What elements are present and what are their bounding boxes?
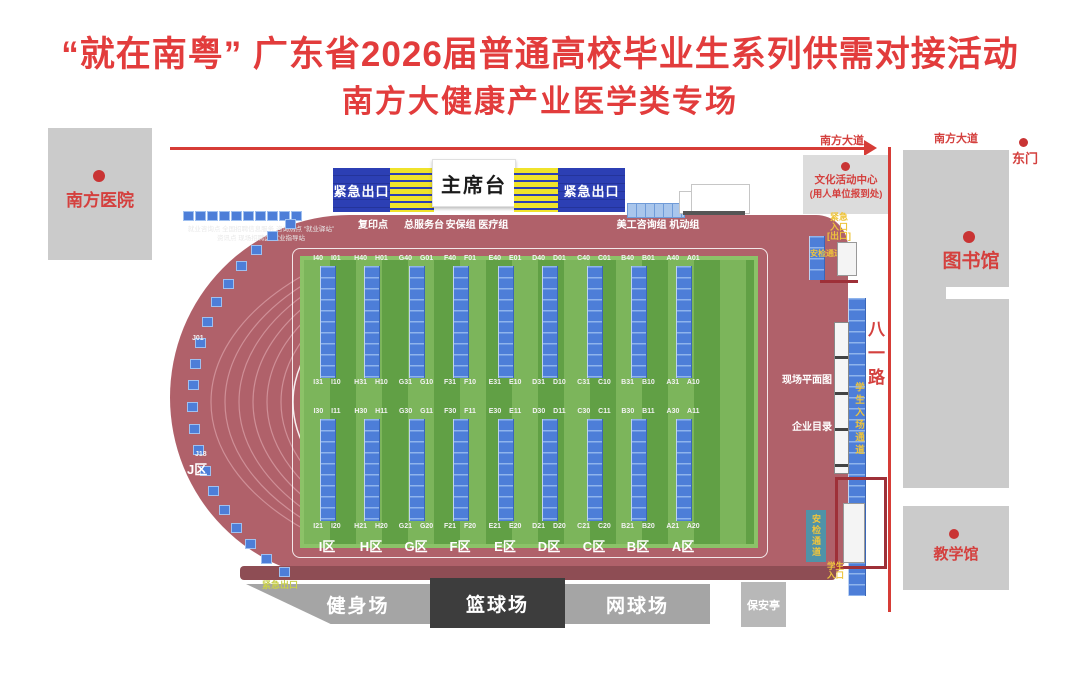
zone-booth-strip-lower [498, 419, 514, 521]
zone-name: E区 [494, 536, 516, 555]
zone-mid-lower-label: I30 I11 [313, 408, 340, 415]
east-gate-dot [1019, 138, 1028, 147]
info-booth [255, 211, 266, 221]
j-booth [279, 567, 290, 577]
info-booth [195, 211, 206, 221]
gate-box-top [837, 242, 857, 276]
info-booth-note: 就业咨询点 全国招聘信息服务 咨询热点 “就业驿站” 资讯点 现场招聘区 就业指… [176, 225, 346, 243]
j-booth [190, 359, 201, 369]
culture-center-label: 文化活动中心 [815, 172, 878, 187]
zone-bottom-label: H21 H20 [354, 523, 388, 530]
info-note-line1: 就业咨询点 全国招聘信息服务 咨询热点 “就业驿站” [176, 225, 346, 234]
zone-mid-upper-label: E31 E10 [489, 379, 522, 386]
j-booth [188, 380, 199, 390]
j-booth [187, 402, 198, 412]
zone-mid-upper-label: G31 G10 [399, 379, 433, 386]
zone-mid-upper-label: B31 B10 [621, 379, 655, 386]
j-booth [211, 297, 222, 307]
security-medical-label: 安保组 医疗组 [446, 216, 509, 231]
zone-mid-upper-label: D31 D10 [532, 379, 566, 386]
zone-mid-lower-label: A30 A11 [667, 408, 700, 415]
zone-booth-strip-upper [320, 266, 336, 378]
zone-booth-strip-lower [676, 419, 692, 521]
rostrum: 主席台 [432, 159, 516, 207]
info-booth [207, 211, 218, 221]
j-booth [231, 523, 242, 533]
zone-booth-strip-lower [631, 419, 647, 521]
library-marker-dot [963, 231, 975, 243]
zone-bottom-label: G21 G20 [399, 523, 433, 530]
student-entrance-label: 学生 入口 [827, 562, 844, 580]
top-road-label: 南方大道 [820, 132, 864, 148]
info-booth [183, 211, 194, 221]
zone-name: G区 [404, 536, 427, 555]
venue-map: “就在南粤” 广东省2026届普通高校毕业生系列供需对接活动 南方大健康产业医学… [0, 0, 1080, 675]
zone-bottom-label: B21 B20 [621, 523, 655, 530]
security-booth: 保安亭 [741, 582, 786, 627]
basketball-court: 篮球场 [430, 578, 565, 628]
info-booth [243, 211, 254, 221]
zone-bottom-label: I21 I20 [313, 523, 340, 530]
zone-mid-lower-label: G30 G11 [399, 408, 433, 415]
zone-mid-lower-label: F30 F11 [444, 408, 476, 415]
zone-name: H区 [360, 536, 382, 555]
emergency-exit-top-right: 紧急出口 [558, 168, 625, 212]
zone-name: B区 [627, 536, 649, 555]
zone-mid-lower-label: D30 D11 [532, 408, 565, 415]
east-gate-label: 东门 [1012, 148, 1038, 167]
zone-top-label: H40 H01 [354, 255, 388, 262]
zone-bottom-label: C21 C20 [577, 523, 611, 530]
zone-booth-strip-upper [498, 266, 514, 378]
zone-bottom-label: F21 F20 [444, 523, 476, 530]
zone-mid-upper-label: F31 F10 [444, 379, 476, 386]
j-zone-name: J区 [187, 459, 207, 478]
j-booth [261, 554, 272, 564]
entrance-gate-door [843, 503, 865, 563]
zone-name: D区 [538, 536, 560, 555]
grandstand-stripe-left [390, 168, 434, 212]
zone-mid-upper-label: A31 A10 [666, 379, 699, 386]
zone-booth-strip-upper [364, 266, 380, 378]
zone-booth-strip-lower [453, 419, 469, 521]
zone-booth-strip-lower [587, 419, 603, 521]
j-booth [267, 231, 278, 241]
teaching-hall-dot [949, 529, 959, 539]
zone-booth-strip-upper [409, 266, 425, 378]
j-booth [219, 505, 230, 515]
zone-mid-lower-label: C30 C11 [577, 408, 610, 415]
zone-booth-strip-lower [320, 419, 336, 521]
zone-booth-strip-lower [542, 419, 558, 521]
art-mobile-label: 美工咨询组 机动组 [617, 216, 700, 231]
zone-top-label: G40 G01 [399, 255, 433, 262]
page-title: “就在南粤” 广东省2026届普通高校毕业生系列供需对接活动 [0, 26, 1080, 77]
zone-mid-upper-label: I31 I10 [313, 379, 340, 386]
info-booth [219, 211, 230, 221]
site-map-label: 现场平面图 [782, 371, 832, 386]
j-booth [245, 539, 256, 549]
info-note-line2: 资讯点 现场招聘区 就业指导站 [176, 234, 346, 243]
tennis-court: 网球场 [565, 584, 710, 624]
j-booth [202, 317, 213, 327]
library-label: 图书馆 [942, 246, 999, 273]
emergency-exit-bottom-label: 紧急出口 [262, 578, 298, 591]
info-booth [267, 211, 278, 221]
emergency-entrance-line3: [出口] [827, 232, 851, 242]
copy-point-label: 复印点 [358, 216, 388, 231]
student-channel-label: 学生入场通道 [851, 382, 865, 457]
j-booth [223, 279, 234, 289]
teaching-hall-label: 教学馆 [933, 543, 978, 564]
zone-booth-strip-upper [453, 266, 469, 378]
hospital-label: 南方医院 [66, 186, 134, 211]
truck-body [691, 184, 750, 214]
page-subtitle: 南方大健康产业医学类专场 [0, 76, 1080, 121]
j-booth [189, 424, 200, 434]
service-desk-label: 总服务台 [404, 216, 444, 231]
zone-top-label: F40 F01 [444, 255, 476, 262]
zone-name: C区 [583, 536, 605, 555]
gate-line-top [820, 280, 858, 283]
zone-bottom-label: D21 D20 [532, 523, 566, 530]
j-last-label: J18 [195, 451, 207, 458]
zone-booth-strip-upper [542, 266, 558, 378]
j-booth [236, 261, 247, 271]
j-booth [251, 245, 262, 255]
student-entrance-line2: 入口 [827, 571, 844, 580]
j-booth [208, 486, 219, 496]
zone-top-label: C40 C01 [577, 255, 611, 262]
info-board [834, 322, 849, 474]
zone-bottom-label: E21 E20 [489, 523, 522, 530]
road-arrow-icon [864, 140, 877, 156]
zone-mid-lower-label: H30 H11 [354, 408, 387, 415]
zone-name: F区 [450, 536, 471, 555]
info-booth [231, 211, 242, 221]
zone-top-label: I40 I01 [313, 255, 340, 262]
emergency-exit-top-left: 紧急出口 [333, 168, 390, 212]
culture-center-dot [841, 162, 850, 171]
truck-base [683, 211, 745, 215]
zone-booth-strip-upper [587, 266, 603, 378]
emergency-entrance-label: 紧急 入口 [出口] [827, 213, 851, 242]
j-booth [285, 219, 296, 229]
vertical-road-line [888, 147, 891, 612]
library-building [903, 150, 1009, 488]
zone-mid-upper-label: C31 C10 [577, 379, 611, 386]
culture-center-sublabel: (用人单位报到处) [810, 186, 883, 200]
zone-mid-lower-label: B30 B11 [621, 408, 654, 415]
zone-top-label: E40 E01 [489, 255, 522, 262]
security-check-bottom-label: 安检通道 [810, 514, 823, 558]
zone-mid-lower-label: E30 E11 [489, 408, 521, 415]
zone-top-label: D40 D01 [532, 255, 566, 262]
zone-name: A区 [672, 536, 694, 555]
zone-mid-upper-label: H31 H10 [354, 379, 388, 386]
zone-top-label: B40 B01 [621, 255, 655, 262]
zone-booth-strip-upper [631, 266, 647, 378]
zone-booth-strip-lower [364, 419, 380, 521]
grandstand-stripe-right [514, 168, 558, 212]
j-first-label: J01 [192, 335, 204, 342]
top-road-line [170, 147, 866, 150]
zone-name: I区 [319, 536, 336, 555]
zone-bottom-label: A21 A20 [666, 523, 699, 530]
zone-top-label: A40 A01 [666, 255, 699, 262]
right-road-label: 南方大道 [934, 130, 978, 146]
company-directory-label: 企业目录 [792, 418, 832, 433]
hospital-marker-dot [93, 170, 105, 182]
library-notch [946, 287, 1009, 299]
zone-booth-strip-upper [676, 266, 692, 378]
zone-booth-strip-lower [409, 419, 425, 521]
